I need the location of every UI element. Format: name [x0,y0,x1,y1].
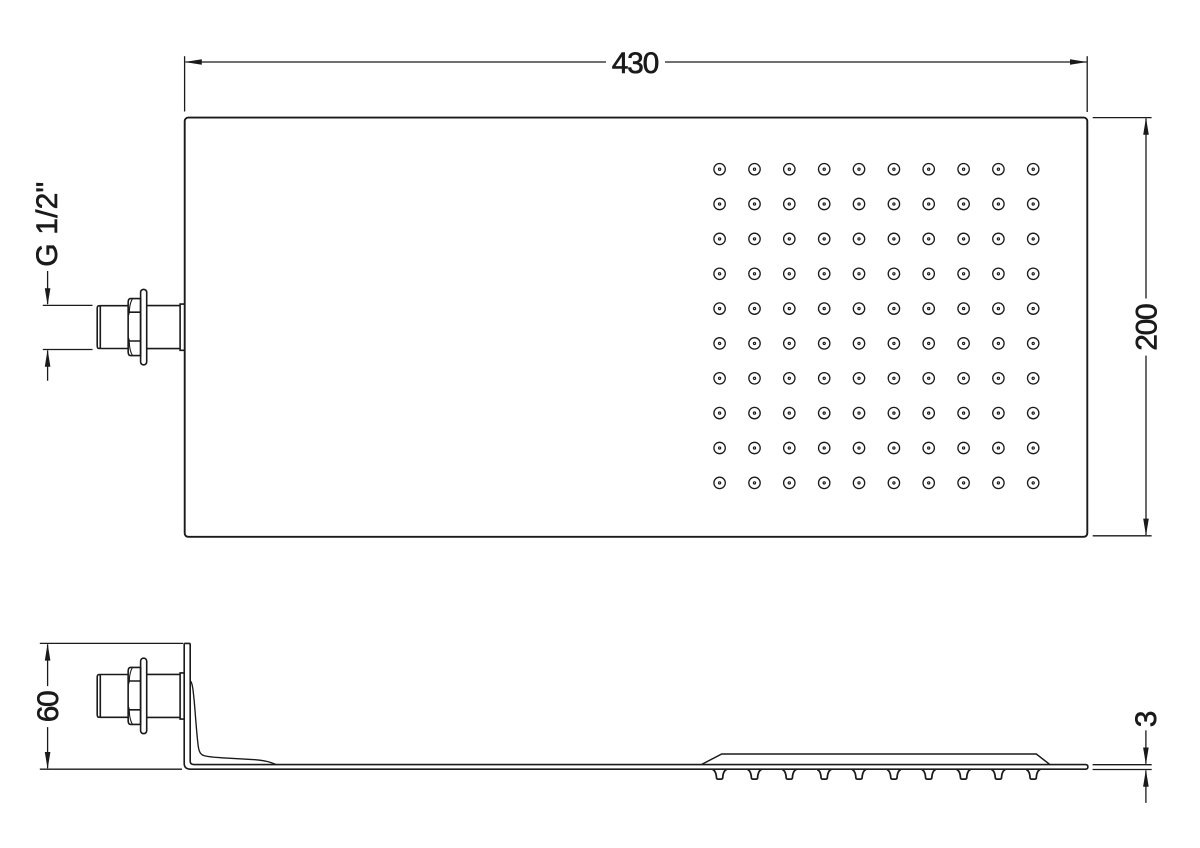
svg-text:3: 3 [1130,711,1163,728]
svg-text:G 1/2": G 1/2" [31,182,64,267]
svg-text:430: 430 [612,47,660,80]
svg-text:60: 60 [32,690,65,722]
svg-text:200: 200 [1130,303,1163,351]
